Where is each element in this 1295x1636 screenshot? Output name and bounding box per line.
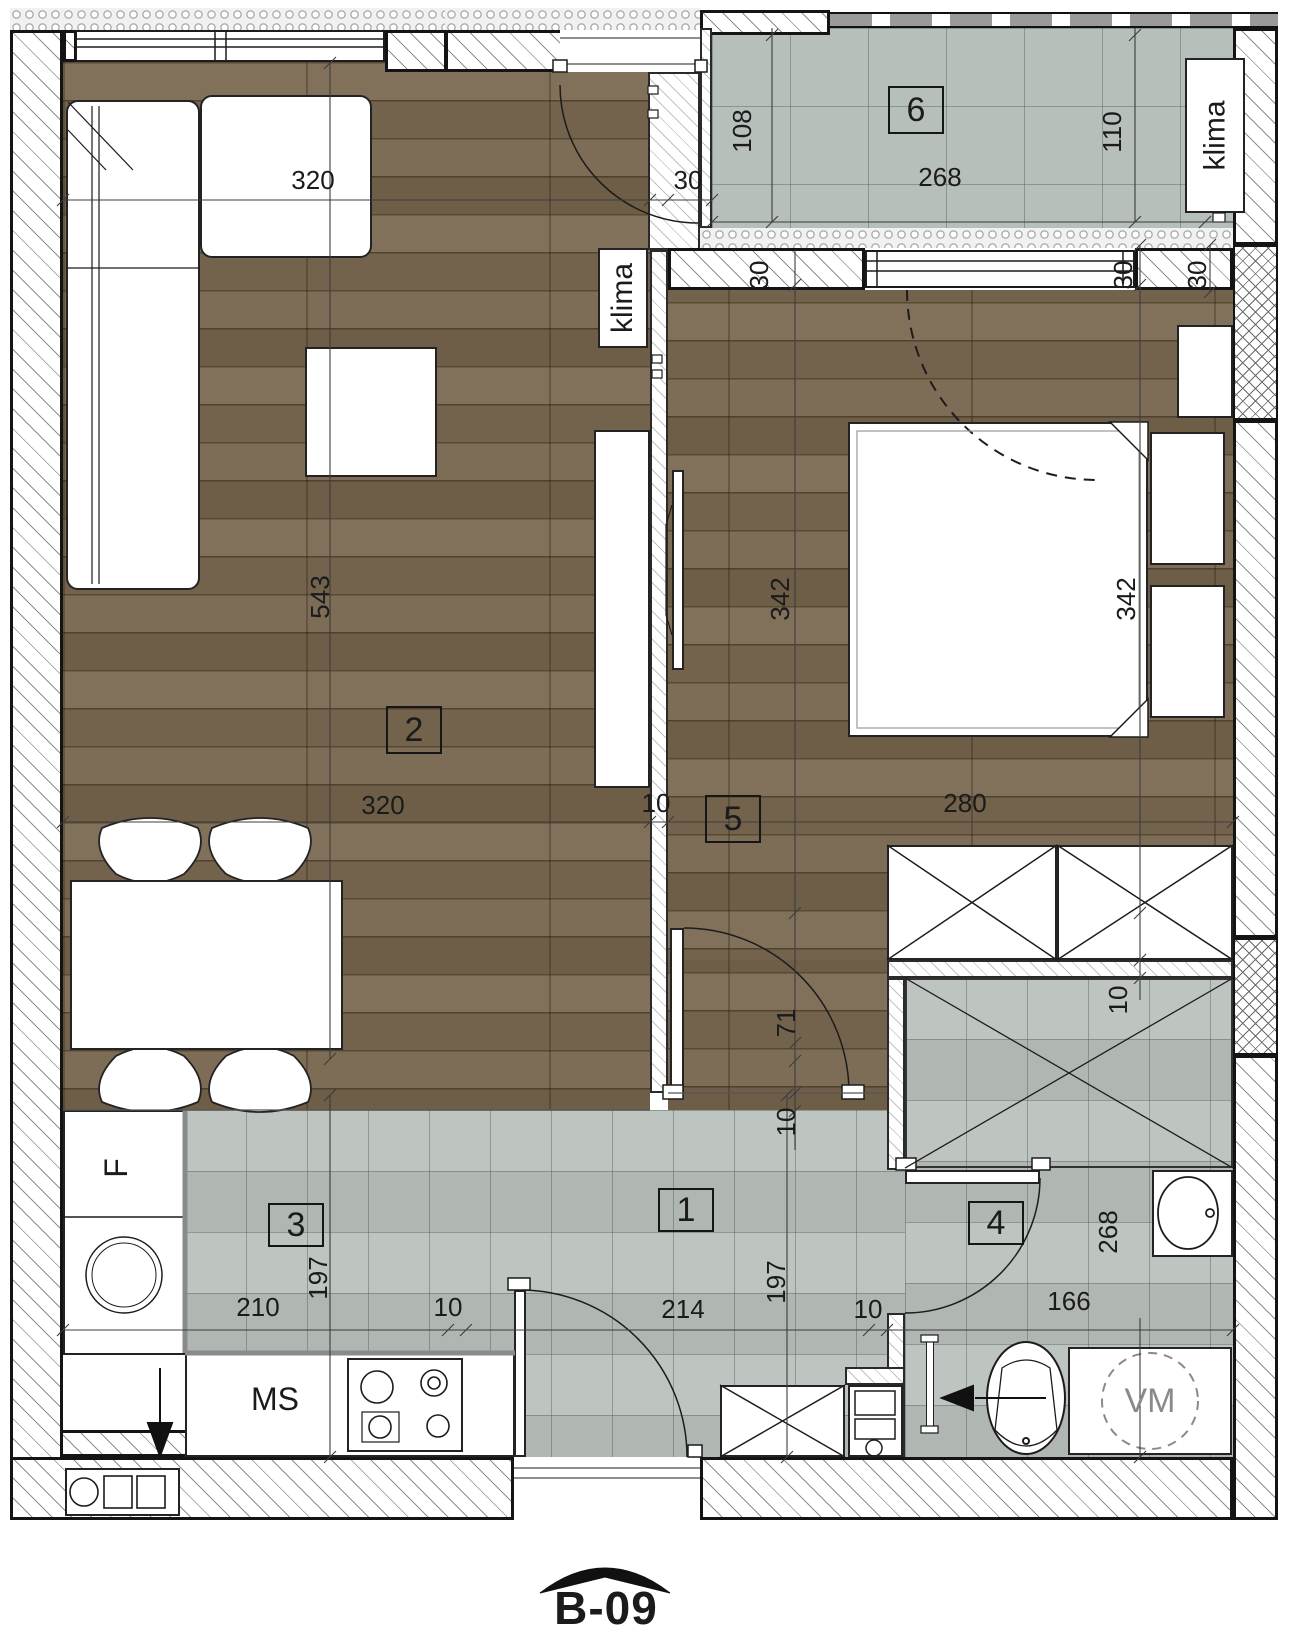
entrance-door-leaf	[514, 1290, 526, 1457]
dim-living-width-top: 320	[278, 164, 348, 196]
tv-bench	[594, 430, 650, 788]
fridge-label: F	[90, 1144, 142, 1192]
room-6-number: 6	[907, 93, 926, 127]
wall-balcony-top-left	[700, 10, 830, 35]
insulation-strip-top	[10, 8, 445, 30]
insulation-strip-balcony	[700, 228, 1233, 248]
dim-hall-wall: 10	[846, 1294, 890, 1324]
unit-title: B-09	[540, 1584, 672, 1632]
entrance-door-opening	[514, 1457, 700, 1520]
dim-balcony-width: 268	[904, 160, 976, 194]
dim-bedroom-height-right: 342	[1090, 567, 1162, 631]
dim-kitchen-width: 210	[226, 1292, 290, 1322]
dim-hall-width: 214	[646, 1294, 720, 1324]
wardrobe-right	[1057, 845, 1233, 960]
bed-pillow	[1150, 432, 1225, 565]
wall-boiler-nib	[845, 1367, 905, 1385]
shaft-box	[720, 1385, 845, 1457]
floor-plan: 1 2 3 4 5 6 320 543 320 10 280 342 342 7…	[0, 0, 1295, 1636]
stove	[347, 1358, 463, 1452]
shower	[905, 978, 1233, 1168]
dim-balcony-wall: 30	[664, 164, 712, 196]
room-5-number: 5	[724, 802, 743, 836]
wall-right-bathroom	[1233, 1055, 1278, 1520]
dim-living-height: 543	[285, 565, 355, 629]
bathroom-sink-cabinet	[1152, 1170, 1233, 1257]
wall-right-bedroom	[1233, 420, 1278, 938]
bathroom-door-leaf	[905, 1170, 1040, 1184]
dim-partition-wall: 10	[634, 788, 678, 818]
wall-partition-living-bedroom	[650, 250, 668, 1093]
dim-door-width: 71	[758, 997, 814, 1049]
wall-crosshatch-mid	[1233, 938, 1278, 1055]
balcony-door-opening	[560, 30, 700, 72]
dim-bedroom-width: 280	[930, 788, 1000, 818]
room-label-3: 3	[268, 1203, 324, 1247]
dim-window-wall-left: 30	[732, 256, 786, 294]
nightstand	[1177, 325, 1233, 418]
living-room-window	[75, 30, 385, 62]
boiler-unit	[848, 1385, 903, 1457]
balcony-railing	[830, 12, 1278, 28]
wardrobe-left	[887, 845, 1057, 960]
dim-living-width: 320	[348, 790, 418, 820]
kitchen-unit-label: MS	[240, 1380, 310, 1418]
dim-bath-wall: 10	[1094, 982, 1142, 1018]
insulation-strip-top-right	[445, 8, 700, 30]
klima-living-label: klima	[573, 273, 673, 323]
towel-radiator	[926, 1340, 934, 1428]
wall-crosshatch-top	[1233, 245, 1278, 420]
tv-panel	[672, 470, 684, 670]
room-label-6: 6	[888, 86, 944, 134]
wall-left	[10, 30, 63, 1520]
dim-bath-width: 166	[1032, 1286, 1106, 1316]
room-1-number: 1	[677, 1193, 696, 1227]
dim-balcony-depth-left: 108	[703, 111, 781, 151]
dim-kitchen-depth: 197	[286, 1258, 350, 1298]
room-4-number: 4	[987, 1206, 1006, 1240]
dim-bath-height: 268	[1066, 1212, 1150, 1252]
bedroom-window	[865, 250, 1135, 288]
wall-living-balcony	[648, 72, 700, 250]
dining-table	[70, 880, 343, 1050]
room-label-5: 5	[705, 795, 761, 843]
dim-window-wall-corner: 30	[1170, 256, 1224, 294]
dim-kitchen-gap: 10	[426, 1292, 470, 1322]
dim-hall-depth: 197	[744, 1262, 808, 1302]
wall-hall-bathroom-stub	[887, 978, 905, 1170]
klima-balcony-label: klima	[1138, 106, 1293, 166]
room-label-4: 4	[968, 1201, 1024, 1245]
dim-window-wall-right: 30	[1096, 256, 1150, 294]
sofa-section-long	[66, 100, 200, 590]
dim-bedroom-height-left: 342	[744, 567, 816, 631]
wall-bottom-right	[700, 1457, 1233, 1520]
wall-bedroom-bathroom	[887, 960, 1233, 978]
wall-top-mid	[385, 30, 447, 72]
wall-kitchen-recess	[60, 1430, 200, 1457]
room-label-2: 2	[386, 706, 442, 754]
room-3-number: 3	[287, 1208, 306, 1242]
room-2-number: 2	[405, 713, 424, 747]
coffee-table	[305, 347, 437, 477]
meter-box	[65, 1468, 180, 1516]
bedroom-door-leaf	[670, 928, 684, 1093]
room-label-1: 1	[658, 1188, 714, 1232]
washing-machine-label: VM	[1116, 1382, 1184, 1420]
dim-door-wall: 10	[760, 1096, 812, 1148]
